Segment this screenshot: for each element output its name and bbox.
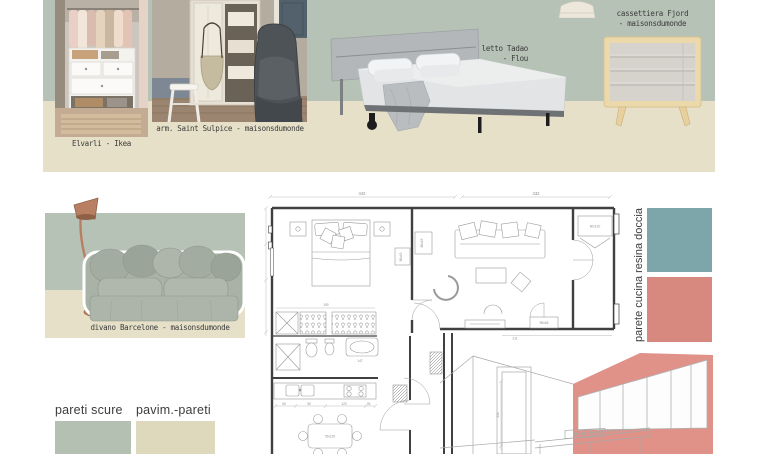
wardrobe-caption: Elvarli - Ikea <box>55 139 148 149</box>
dim-120: 120 <box>341 402 347 406</box>
closet-symbols <box>276 312 376 334</box>
bathroom-symbols <box>276 338 378 370</box>
dim-51: 51 <box>367 402 371 406</box>
floor-walls-swatch <box>136 421 215 454</box>
dark-walls-label: pareti scure <box>55 403 123 417</box>
dresser-caption-line2: - maisonsdumonde <box>605 19 700 29</box>
armchair <box>254 24 302 122</box>
bed-caption-line1: letto Tadao <box>450 44 528 54</box>
dim-50: 50 <box>282 402 286 406</box>
kitchen-sketch <box>440 350 760 454</box>
teal-swatch <box>647 208 712 272</box>
dim-211: 211 <box>512 337 517 341</box>
table-label: 76x120 <box>325 435 336 439</box>
hall-closet-symbol <box>578 216 612 248</box>
dresser-caption: cassettiera Fjord - maisonsdumonde <box>605 9 700 29</box>
armoire-photo <box>152 0 307 122</box>
bed-symbol <box>290 220 390 286</box>
sofa-caption: divano Barcelone - maisonsdumonde <box>60 323 260 333</box>
living-room-symbols <box>434 221 558 328</box>
bed-caption: letto Tadao - Flou <box>450 44 528 64</box>
hall-closet-label: 60x120 <box>590 225 601 229</box>
shelf-label-bedroom: 80x45 <box>399 252 403 261</box>
dim-190: 190 <box>323 303 329 307</box>
coral-swatch <box>647 277 712 342</box>
dim-442: 442 <box>359 191 367 196</box>
dresser-caption-line1: cassettiera Fjord <box>605 9 700 19</box>
wall-palette-vertical-label: parete cucina resina doccia <box>633 200 647 350</box>
dim-90: 90 <box>307 402 311 406</box>
design-presentation-board: Elvarli - Ikea <box>0 0 760 454</box>
armoire-unit <box>190 0 260 105</box>
rug <box>61 114 141 134</box>
floor-walls-label: pavim.-pareti <box>136 403 211 417</box>
dresser-photo <box>603 36 703 128</box>
wardrobe-unit <box>69 48 135 110</box>
console-label: 95x45 <box>540 321 549 325</box>
dim-147: 147 <box>357 359 363 363</box>
bed-photo <box>328 25 585 143</box>
dim-432: 432 <box>533 191 541 196</box>
shelf-label-living: 80x45 <box>420 238 424 247</box>
sofa-photo <box>82 238 246 324</box>
armoire-caption: arm. Saint Sulpice - maisonsdumonde <box>150 124 310 134</box>
bed-caption-line2: - Flou <box>450 54 528 64</box>
wardrobe-photo <box>55 0 148 137</box>
pendant-lamp-icon <box>552 0 602 18</box>
dark-walls-swatch <box>55 421 131 454</box>
